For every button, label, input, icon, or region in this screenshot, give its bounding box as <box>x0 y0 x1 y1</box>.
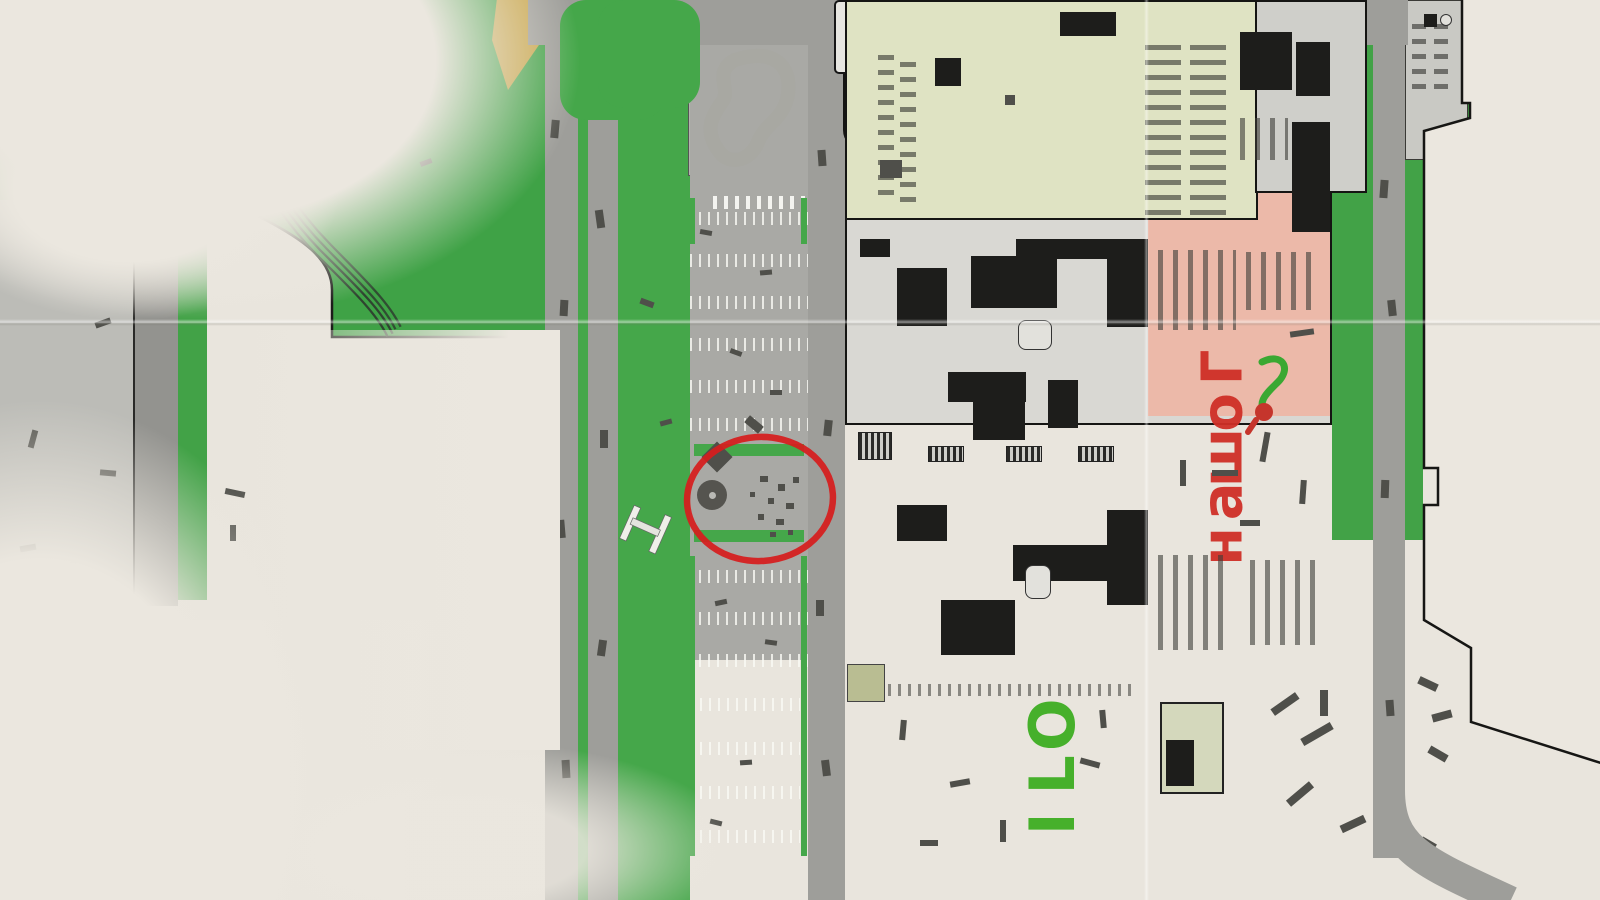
map-decor-blk <box>935 58 961 86</box>
map-decor-blk <box>1292 122 1330 232</box>
map-decor-blk <box>941 600 1015 655</box>
west-grass-strip <box>178 0 207 600</box>
map-decor-dk <box>230 525 236 541</box>
goshan-logo-text: Гошан <box>1192 345 1256 569</box>
highway-lane-east <box>588 0 618 900</box>
south-grass-island-2 <box>598 0 700 108</box>
map-decor-dk <box>1381 480 1390 498</box>
map-decor-blk <box>1048 380 1078 428</box>
map-decor-blk <box>1060 12 1116 36</box>
map-decor-dk <box>793 477 799 483</box>
map-decor-prow <box>690 296 808 309</box>
map-decor-dk <box>1320 690 1328 716</box>
oli-logo-text: OLI <box>1020 700 1086 849</box>
map-decor-dk <box>1427 746 1448 763</box>
southeast-road-curve <box>1389 790 1510 900</box>
map-decor-dk <box>823 420 833 437</box>
map-decor-stair <box>1078 446 1114 462</box>
map-decor-vshelf <box>1412 24 1426 96</box>
map-decor-dk <box>760 476 768 482</box>
map-decor-dk <box>920 840 938 846</box>
southwest-grass-remnant <box>0 0 160 200</box>
map-decor-dk <box>760 269 772 275</box>
map-decor-dk <box>1180 460 1186 486</box>
map-decor-vshelf <box>1190 45 1226 215</box>
map-decor-hshelf <box>1246 252 1312 310</box>
map-decor-hshelf <box>1158 250 1236 330</box>
map-decor-stair <box>858 432 892 460</box>
map-decor-hshelf <box>1250 560 1316 645</box>
map-decor-prow <box>690 254 808 267</box>
map-decor-dk <box>1286 781 1314 806</box>
map-decor-prow <box>690 654 808 667</box>
map-decor-dk <box>600 430 608 448</box>
map-decor-dk <box>950 778 971 787</box>
map-decor-dk <box>1379 180 1388 199</box>
west-bus-stop-pad <box>206 0 274 100</box>
map-decor-prow <box>700 742 800 755</box>
map-decor-dk <box>1240 520 1260 526</box>
map-decor-vshelf <box>1145 45 1181 215</box>
map-decor-dk <box>1259 432 1270 463</box>
median-green-wide <box>618 0 690 900</box>
map-decor-lt <box>709 492 716 499</box>
map-decor-blk <box>1107 510 1148 605</box>
map-decor-dk <box>560 300 569 316</box>
map-decor-hshelf <box>1158 555 1233 650</box>
map-canvas: IDEA Гошан OLI <box>0 0 1600 900</box>
map-decor-dk <box>1270 692 1299 716</box>
map-decor-dk <box>1385 700 1394 717</box>
map-decor-prow <box>690 380 808 393</box>
map-decor-prow <box>700 830 800 843</box>
fog-south-left <box>0 620 520 900</box>
map-decor-dk <box>750 492 755 497</box>
map-decor-dk <box>1005 95 1015 105</box>
map-decor-dk <box>1417 676 1439 692</box>
map-decor-hshelf2 <box>868 684 1132 696</box>
highway-median <box>578 0 588 900</box>
map-decor-dk <box>1099 710 1107 728</box>
map-decor-dk <box>100 469 116 476</box>
map-decor-stair <box>928 446 964 462</box>
map-decor-dk <box>1340 815 1367 833</box>
map-decor-dk <box>420 158 433 167</box>
map-decor-dk <box>1387 300 1397 317</box>
map-decor-dk <box>770 532 776 537</box>
map-decor-dk <box>816 600 824 616</box>
map-decor-dk <box>555 520 566 539</box>
map-decor-prow <box>700 786 800 799</box>
map-decor-pod <box>1025 565 1051 599</box>
map-decor-prow <box>690 212 808 225</box>
map-decor-dk <box>768 498 774 504</box>
map-decor-pod <box>1018 320 1052 350</box>
map-decor-gbar <box>688 556 695 856</box>
map-decor-dk <box>1431 710 1452 723</box>
map-decor-stair <box>1006 446 1042 462</box>
map-decor-dk <box>710 819 723 827</box>
map-decor-pxwalk <box>713 196 807 209</box>
map-decor-dk <box>1457 864 1475 877</box>
map-decor-vshelf <box>1434 24 1448 96</box>
map-decor-annex <box>847 664 885 702</box>
map-decor-gbar <box>801 198 807 244</box>
map-decor-dk <box>70 562 76 576</box>
map-decor-dk <box>880 160 902 178</box>
map-decor-dk <box>776 519 784 525</box>
map-decor-prow <box>690 612 808 625</box>
map-decor-blk <box>897 268 947 326</box>
map-decor-dk <box>899 720 907 740</box>
map-decor-dk <box>299 57 314 69</box>
map-decor-dk <box>1212 470 1238 476</box>
map-decor-vshelf <box>900 62 916 202</box>
map-decor-blk <box>1296 42 1330 96</box>
map-decor-pod <box>1440 14 1452 26</box>
map-decor-vshelf <box>878 55 894 205</box>
map-decor-blk <box>897 505 947 541</box>
map-decor-dk <box>1419 837 1437 852</box>
map-decor-blk <box>1240 32 1292 90</box>
map-decor-dk <box>550 120 560 139</box>
east-road <box>1373 0 1405 858</box>
map-decor-blk <box>1107 239 1148 327</box>
map-decor-blk <box>1016 239 1108 259</box>
map-decor-dk <box>758 514 764 520</box>
map-decor-blk <box>1166 740 1194 786</box>
map-decor-blk <box>948 372 1026 402</box>
map-decor-dk <box>788 530 793 535</box>
map-decor-dk <box>1000 820 1006 842</box>
map-decor-dk <box>225 488 246 498</box>
map-decor-gbar <box>688 198 695 244</box>
map-decor-dk <box>740 760 752 766</box>
map-decor-dk <box>1300 722 1333 746</box>
map-decor-dk <box>770 390 782 395</box>
map-decor-dk <box>60 220 66 236</box>
map-decor-blk <box>973 402 1025 440</box>
map-decor-blk <box>971 256 1057 308</box>
map-decor-gbar <box>801 556 807 856</box>
map-decor-dk <box>562 760 571 778</box>
map-decor-dk <box>778 484 785 491</box>
map-decor-prow <box>690 570 808 583</box>
map-decor-prow <box>690 338 808 351</box>
map-decor-dk <box>817 150 826 167</box>
map-decor-blk <box>860 239 890 257</box>
map-decor-hshelf <box>1240 118 1288 160</box>
map-decor-dk <box>1299 480 1307 504</box>
fog-center-left <box>220 330 560 750</box>
map-decor-prow <box>700 698 800 711</box>
map-decor-blk <box>1424 14 1437 27</box>
map-decor-dk <box>786 503 794 509</box>
